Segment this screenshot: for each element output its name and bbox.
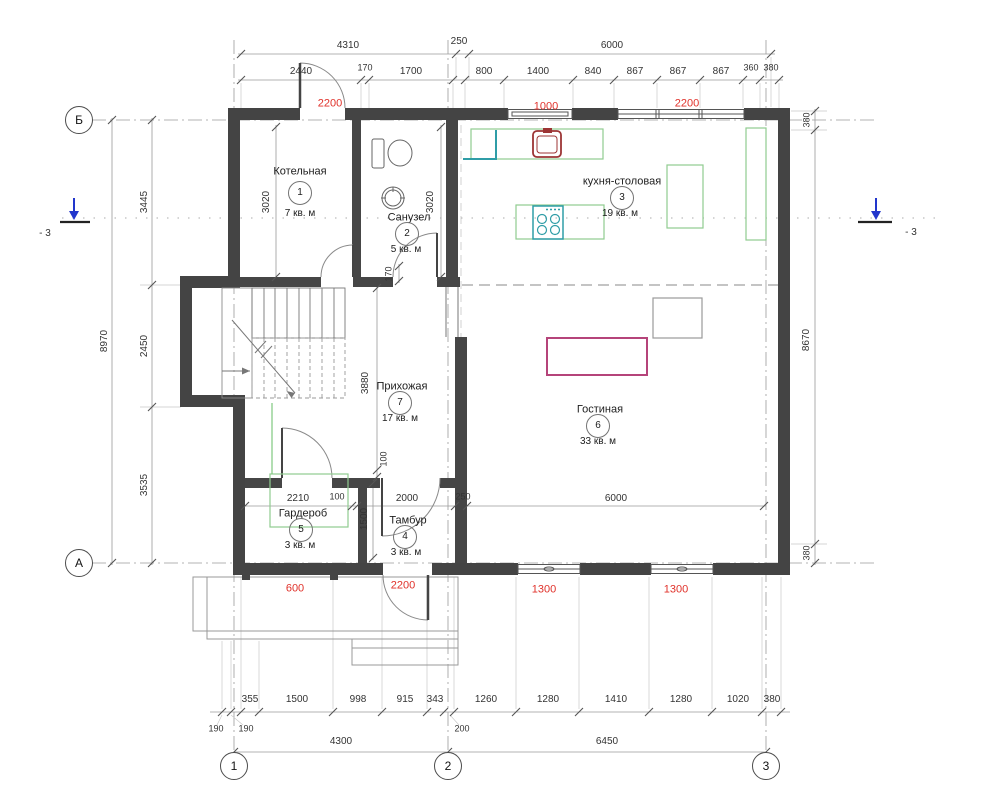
dim-bottom: 380	[764, 695, 781, 705]
dim-top2: 867	[627, 67, 644, 77]
dim-bottom: 915	[397, 695, 414, 705]
dim-inner: 100	[380, 451, 389, 466]
room-area-kitchen: 19 кв. м	[602, 209, 638, 219]
dim-bottom-small: 190	[238, 725, 253, 734]
kitchen-sink-icon	[533, 128, 561, 157]
dim-red-door: 2200	[318, 99, 342, 110]
dim-bottom: 1280	[670, 695, 692, 705]
dim-red-bottom: 1300	[532, 585, 556, 596]
dim-red-bottom: 1300	[664, 585, 688, 596]
toilet-icon	[372, 139, 412, 168]
room-number-tambur: 4	[393, 525, 417, 549]
dim-bottom: 998	[350, 695, 367, 705]
dim-top2: 380	[763, 64, 778, 73]
dim-top2: 170	[357, 64, 372, 73]
dim-inner: 6000	[605, 494, 627, 504]
dim-inner: 1500	[360, 508, 370, 530]
room-number-sanuzel: 2	[395, 222, 419, 246]
dim-red-bottom: 2200	[391, 581, 415, 592]
dim-inner: 3880	[361, 372, 371, 394]
axis-bubble-2: 2	[434, 752, 462, 780]
dim-bottom2: 6450	[596, 737, 618, 747]
dim-bottom: 1280	[537, 695, 559, 705]
room-number-garderob: 5	[289, 518, 313, 542]
room-number-gostinaya: 6	[586, 414, 610, 438]
dim-top2: 360	[743, 64, 758, 73]
dim-inner: 2000	[396, 494, 418, 504]
room-area-sanuzel: 5 кв. м	[391, 245, 421, 255]
dim-right: 8670	[802, 329, 812, 351]
room-name-kotelnaya: Котельная	[273, 167, 326, 178]
dim-top2: 867	[670, 67, 687, 77]
room-number-prihozhaya: 7	[388, 391, 412, 415]
section-label-left: - 3	[39, 229, 51, 239]
axis-bubble-b: Б	[65, 106, 93, 134]
dim-bottom-small: 200	[454, 725, 469, 734]
porch-steps	[193, 577, 458, 665]
dim-left-total: 8970	[100, 330, 110, 352]
dim-bottom: 1260	[475, 695, 497, 705]
cooktop-icon	[533, 206, 563, 239]
dim-red-bottom: 600	[286, 584, 304, 595]
interior-walls	[240, 120, 467, 563]
dim-bottom: 1020	[727, 695, 749, 705]
dim-top: 6000	[601, 41, 623, 51]
plan-drawing	[0, 0, 1000, 785]
dim-top2: 840	[585, 67, 602, 77]
dim-top2: 2440	[290, 67, 312, 77]
extension-lines	[140, 57, 827, 725]
dim-top2: 1700	[400, 67, 422, 77]
dim-bottom: 343	[427, 695, 444, 705]
furniture	[270, 128, 766, 527]
room-area-prihozhaya: 17 кв. м	[382, 414, 418, 424]
dim-right: 380	[803, 545, 812, 560]
room-number-kotelnaya: 1	[288, 181, 312, 205]
dim-red-window: 1000	[534, 102, 558, 113]
dim-top2: 800	[476, 67, 493, 77]
dim-inner: 3020	[262, 191, 272, 213]
room-area-garderob: 3 кв. м	[285, 541, 315, 551]
sink-icon	[381, 187, 405, 209]
dim-left: 2450	[140, 335, 150, 357]
exterior-walls	[180, 108, 790, 580]
dim-bottom: 1410	[605, 695, 627, 705]
axis-bubble-3: 3	[752, 752, 780, 780]
dim-inner: 170	[385, 266, 394, 281]
dim-top2: 867	[713, 67, 730, 77]
dim-top: 4310	[337, 41, 359, 51]
dim-bottom: 355	[242, 695, 259, 705]
dim-inner: 3020	[426, 191, 436, 213]
dim-right: 380	[803, 112, 812, 127]
section-marker-right	[858, 198, 892, 222]
room-area-gostinaya: 33 кв. м	[580, 437, 616, 447]
floor-plan: 4310 250 6000 2440 170 1700 800 1400 840…	[0, 0, 1000, 785]
dim-bottom-small: 190	[208, 725, 223, 734]
dim-inner: 250	[455, 493, 470, 502]
room-area-kotelnaya: 7 кв. м	[285, 209, 315, 219]
section-marker-left	[60, 198, 90, 222]
dim-inner: 100	[329, 493, 344, 502]
dim-red-window: 2200	[675, 99, 699, 110]
stairs	[222, 288, 345, 398]
dim-top: 250	[451, 37, 468, 47]
dim-inner: 2210	[287, 494, 309, 504]
dim-top2: 1400	[527, 67, 549, 77]
dim-left: 3535	[140, 474, 150, 496]
axis-bubble-1: 1	[220, 752, 248, 780]
dim-left: 3445	[140, 191, 150, 213]
room-area-tambur: 3 кв. м	[391, 548, 421, 558]
axis-bubble-a: А	[65, 549, 93, 577]
dim-bottom: 1500	[286, 695, 308, 705]
dim-bottom2: 4300	[330, 737, 352, 747]
room-number-kitchen: 3	[610, 186, 634, 210]
section-label-right: - 3	[905, 228, 917, 238]
